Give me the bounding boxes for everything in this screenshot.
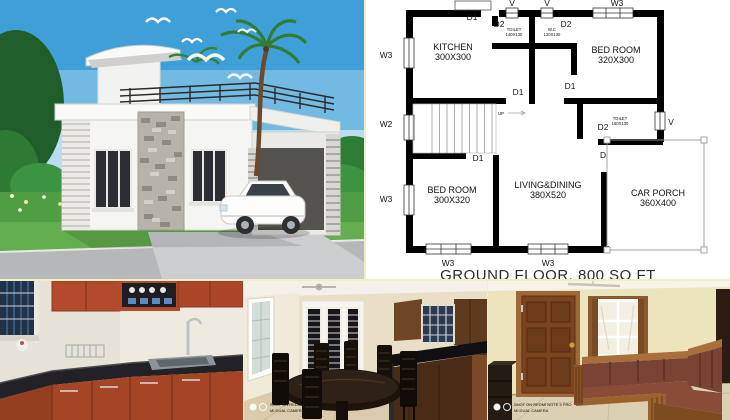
plan-marker: D2 xyxy=(494,19,505,29)
plan-marker: V xyxy=(509,0,515,8)
porch-projection xyxy=(455,1,491,10)
plan-room-label: BED ROOM300X320 xyxy=(427,185,476,205)
plan-background xyxy=(366,0,730,279)
svg-text:SHOT ON REDMI NOTE 5 PRO: SHOT ON REDMI NOTE 5 PRO xyxy=(514,402,572,407)
plan-marker: UP xyxy=(498,111,504,116)
living-room-photo: SHOT ON REDMI NOTE 5 PRO MI DUAL CAMERA xyxy=(488,281,730,420)
plan-marker: V xyxy=(668,117,674,127)
plan-small-room-label: TOILET160X130 xyxy=(612,116,629,126)
kitchen-window xyxy=(0,281,39,351)
plan-marker: W3 xyxy=(380,50,393,60)
svg-text:MI DUAL CAMERA: MI DUAL CAMERA xyxy=(270,408,305,413)
louver-wall-left xyxy=(62,118,90,230)
stone-column xyxy=(138,112,184,230)
plan-marker: W3 xyxy=(380,194,393,204)
plan-marker: D2 xyxy=(598,122,609,132)
plan-marker: D xyxy=(600,150,606,160)
dining-room-photo: SHOT ON REDMI NOTE 5 PRO MI DUAL CAMERA xyxy=(244,281,487,420)
svg-text:MI DUAL CAMERA: MI DUAL CAMERA xyxy=(514,408,549,413)
svg-text:SHOT ON REDMI NOTE 5 PRO: SHOT ON REDMI NOTE 5 PRO xyxy=(270,402,328,407)
plan-marker: V xyxy=(544,0,550,8)
kitchen-photo xyxy=(0,281,243,420)
floor-plan-panel: KITCHEN300X300BED ROOM320X300BED ROOM300… xyxy=(366,0,730,279)
collage: KITCHEN300X300BED ROOM320X300BED ROOM300… xyxy=(0,0,730,420)
plan-marker: W3 xyxy=(611,0,624,8)
plan-marker: D1 xyxy=(513,87,524,97)
window-left xyxy=(92,150,134,212)
plan-marker: D1 xyxy=(565,81,576,91)
entry-door xyxy=(516,291,580,397)
window-right xyxy=(189,150,229,206)
plan-marker: D1 xyxy=(473,153,484,163)
plan-small-room-label: TOILET140X130 xyxy=(506,27,523,37)
side-window xyxy=(248,297,274,381)
plan-room-label: BED ROOM320X300 xyxy=(591,45,640,65)
plan-room-label: KITCHEN300X300 xyxy=(433,42,473,62)
plan-caption: GROUND FLOOR, 800 SQ FT xyxy=(366,267,730,279)
plan-marker: D2 xyxy=(561,19,572,29)
plan-marker: W2 xyxy=(380,119,393,129)
plan-marker: D1 xyxy=(467,12,478,22)
upper-cabinets xyxy=(52,281,243,311)
exterior-render-photo xyxy=(0,0,364,279)
